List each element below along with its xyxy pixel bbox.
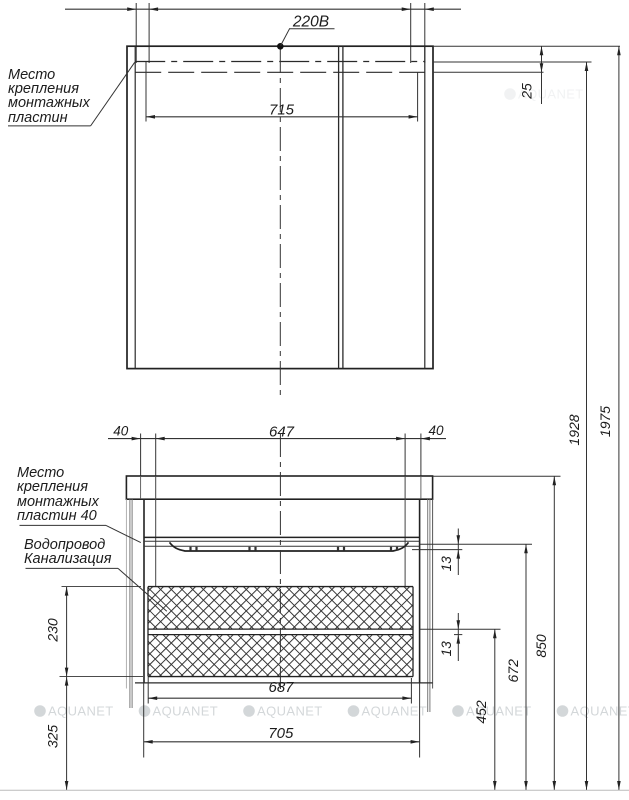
svg-text:13: 13 (439, 641, 454, 657)
svg-text:AQUANET: AQUANET (153, 704, 219, 719)
svg-text:1928: 1928 (566, 414, 582, 445)
svg-text:13: 13 (439, 556, 454, 572)
svg-text:325: 325 (44, 725, 60, 749)
svg-text:452: 452 (473, 700, 489, 724)
svg-text:40: 40 (113, 423, 129, 438)
svg-text:AQUANET: AQUANET (257, 704, 323, 719)
svg-text:40: 40 (428, 423, 444, 438)
svg-text:25: 25 (518, 83, 534, 100)
svg-text:672: 672 (505, 659, 521, 683)
svg-text:715: 715 (269, 101, 295, 118)
svg-text:647: 647 (269, 423, 295, 440)
svg-text:705: 705 (268, 725, 294, 742)
svg-text:AQUANET: AQUANET (362, 704, 428, 719)
svg-text:687: 687 (268, 679, 294, 696)
svg-text:230: 230 (44, 618, 60, 643)
svg-text:220В: 220В (292, 14, 329, 31)
svg-text:850: 850 (533, 634, 549, 658)
svg-text:AQUANET: AQUANET (48, 704, 114, 719)
svg-text:AQUANET: AQUANET (571, 704, 629, 719)
svg-text:1975: 1975 (597, 406, 613, 437)
